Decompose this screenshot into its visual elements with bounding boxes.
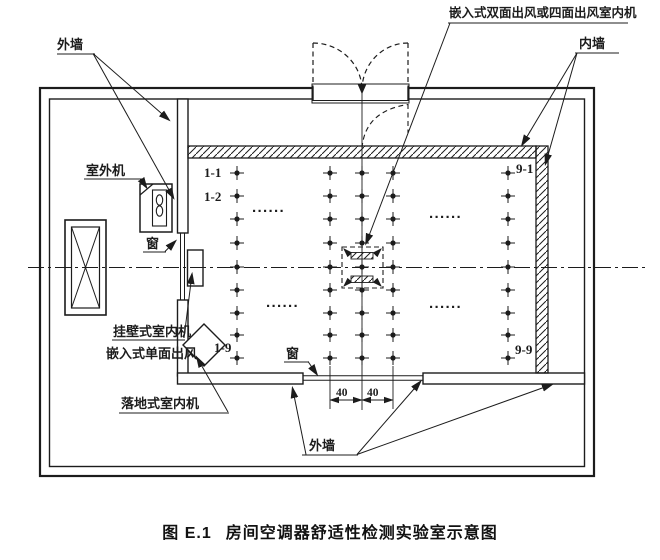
dimension-value-right: 40 xyxy=(367,388,379,400)
diagram-linework xyxy=(0,0,660,560)
label-window-left: 窗 xyxy=(146,237,159,251)
center-lines xyxy=(28,88,648,410)
measurement-point xyxy=(386,212,400,226)
label-cassette-unit: 嵌入式双面出风或四面出风室内机 xyxy=(449,7,637,21)
measurement-point xyxy=(501,351,515,365)
measurement-point xyxy=(355,212,369,226)
measurement-point xyxy=(323,189,337,203)
label-window-bottom: 窗 xyxy=(286,347,299,361)
measurement-point xyxy=(386,328,400,342)
figure-canvas: 外墙 嵌入式双面出风或四面出风室内机 内墙 室外机 窗 挂壁式室内机 嵌入式单面… xyxy=(0,0,660,560)
measurement-point xyxy=(323,306,337,320)
room-bottom-wall xyxy=(178,373,585,384)
label-interior-wall: 内墙 xyxy=(579,37,605,51)
measurement-point xyxy=(386,189,400,203)
measurement-point xyxy=(230,212,244,226)
point-label-9-1: 9-1 xyxy=(516,162,533,175)
label-outdoor-unit: 室外机 xyxy=(86,164,125,178)
measurement-point xyxy=(386,236,400,250)
interior-wall-hatched xyxy=(188,146,548,373)
grid-ellipsis: ······ xyxy=(429,210,462,225)
measurement-point xyxy=(230,351,244,365)
measurement-point xyxy=(355,166,369,180)
measurement-point xyxy=(230,283,244,297)
label-wall-mounted-unit: 挂壁式室内机 xyxy=(113,325,191,339)
measurement-point xyxy=(323,351,337,365)
point-label-1-9: 1-9 xyxy=(214,341,231,354)
figure-title: 房间空调器舒适性检测实验室示意图 xyxy=(226,525,498,542)
label-embedded-single-outlet: 嵌入式单面出风 xyxy=(106,347,197,361)
measurement-point xyxy=(501,306,515,320)
measurement-point xyxy=(386,283,400,297)
label-exterior-wall-top: 外墙 xyxy=(57,38,83,52)
figure-caption: 图 E.1房间空调器舒适性检测实验室示意图 xyxy=(0,519,660,543)
measurement-point xyxy=(355,283,369,297)
grid-ellipsis: ······ xyxy=(252,204,285,219)
measurement-point xyxy=(230,166,244,180)
grid-ellipsis: ······ xyxy=(429,300,462,315)
measurement-point xyxy=(323,212,337,226)
exterior-wall-outline xyxy=(40,84,594,476)
measurement-point xyxy=(355,306,369,320)
measurement-point xyxy=(230,260,244,274)
measurement-point xyxy=(501,189,515,203)
measurement-point xyxy=(355,260,369,274)
label-exterior-wall-bottom: 外墙 xyxy=(309,439,335,453)
measurement-point xyxy=(323,328,337,342)
measurement-point xyxy=(501,166,515,180)
measurement-point xyxy=(323,166,337,180)
measurement-point xyxy=(501,212,515,226)
measurement-point xyxy=(501,328,515,342)
measurement-point xyxy=(501,283,515,297)
measurement-point xyxy=(323,236,337,250)
measurement-point xyxy=(230,189,244,203)
measurement-point xyxy=(386,306,400,320)
outdoor-unit-symbol xyxy=(140,184,172,232)
measurement-point xyxy=(230,328,244,342)
measurement-point xyxy=(355,189,369,203)
point-label-1-2: 1-2 xyxy=(204,190,221,203)
label-floor-standing-unit: 落地式室内机 xyxy=(121,397,199,411)
measurement-point xyxy=(501,236,515,250)
grid-ellipsis: ······ xyxy=(266,299,299,314)
measurement-grid xyxy=(230,166,515,365)
figure-number: 图 E.1 xyxy=(162,525,211,542)
dimension-value-left: 40 xyxy=(336,388,348,400)
measurement-point xyxy=(323,260,337,274)
measurement-point xyxy=(323,283,337,297)
measurement-point xyxy=(355,328,369,342)
measurement-point xyxy=(355,351,369,365)
point-label-9-9: 9-9 xyxy=(515,343,532,356)
measurement-point xyxy=(386,351,400,365)
measurement-point xyxy=(230,236,244,250)
point-label-1-1: 1-1 xyxy=(204,166,221,179)
measurement-point xyxy=(230,306,244,320)
measurement-point xyxy=(355,236,369,250)
measurement-point xyxy=(501,260,515,274)
measurement-point xyxy=(386,260,400,274)
